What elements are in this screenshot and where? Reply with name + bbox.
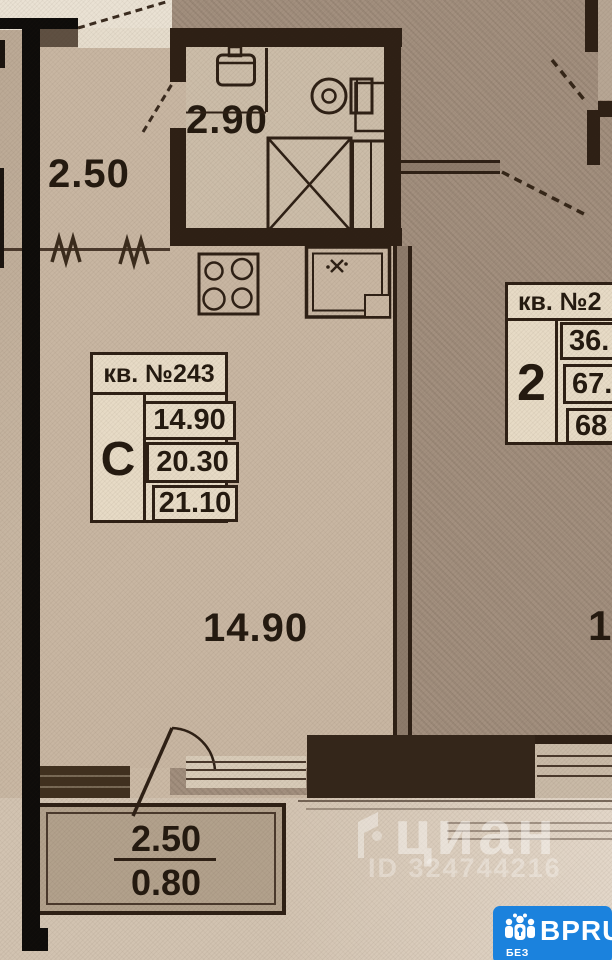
kitchen-sink-icon [307, 247, 391, 317]
pier-detail-lines [36, 776, 130, 787]
bathroom-door-swing [143, 84, 172, 132]
neighbor-top-door-swing [552, 60, 586, 102]
entry-door-swing [78, 2, 166, 28]
photo-edge-line-2 [0, 168, 4, 268]
balcony-door-arc [172, 728, 215, 771]
photo-edge-bar-vertical [22, 25, 40, 951]
balcony-door-leaf [133, 728, 172, 816]
bpru-badge: BPRU БЕЗ ПОСРЕДНИКОВ [493, 906, 612, 960]
bathroom-sink-icon [217, 47, 255, 85]
bpru-brand-text: BPRU [540, 915, 612, 947]
photo-edge-line-1 [0, 40, 5, 68]
listing-id-watermark: ID 324744216 [368, 853, 562, 884]
shower-icon [268, 138, 351, 231]
photo-edge-bar-top [0, 18, 78, 29]
floorplan-photo: 2.90 2.50 14.90 1 2.50 0.80 кв. №243 С 1… [0, 0, 612, 960]
bpru-tagline-text: БЕЗ ПОСРЕДНИКОВ [506, 947, 612, 960]
bpru-people-icon [501, 913, 539, 945]
window-lines [186, 756, 612, 779]
partition-break-icon [120, 240, 148, 264]
stove-icon [199, 254, 258, 314]
neighbor-door-swing [502, 172, 584, 214]
photo-edge-bar-foot [22, 928, 48, 951]
